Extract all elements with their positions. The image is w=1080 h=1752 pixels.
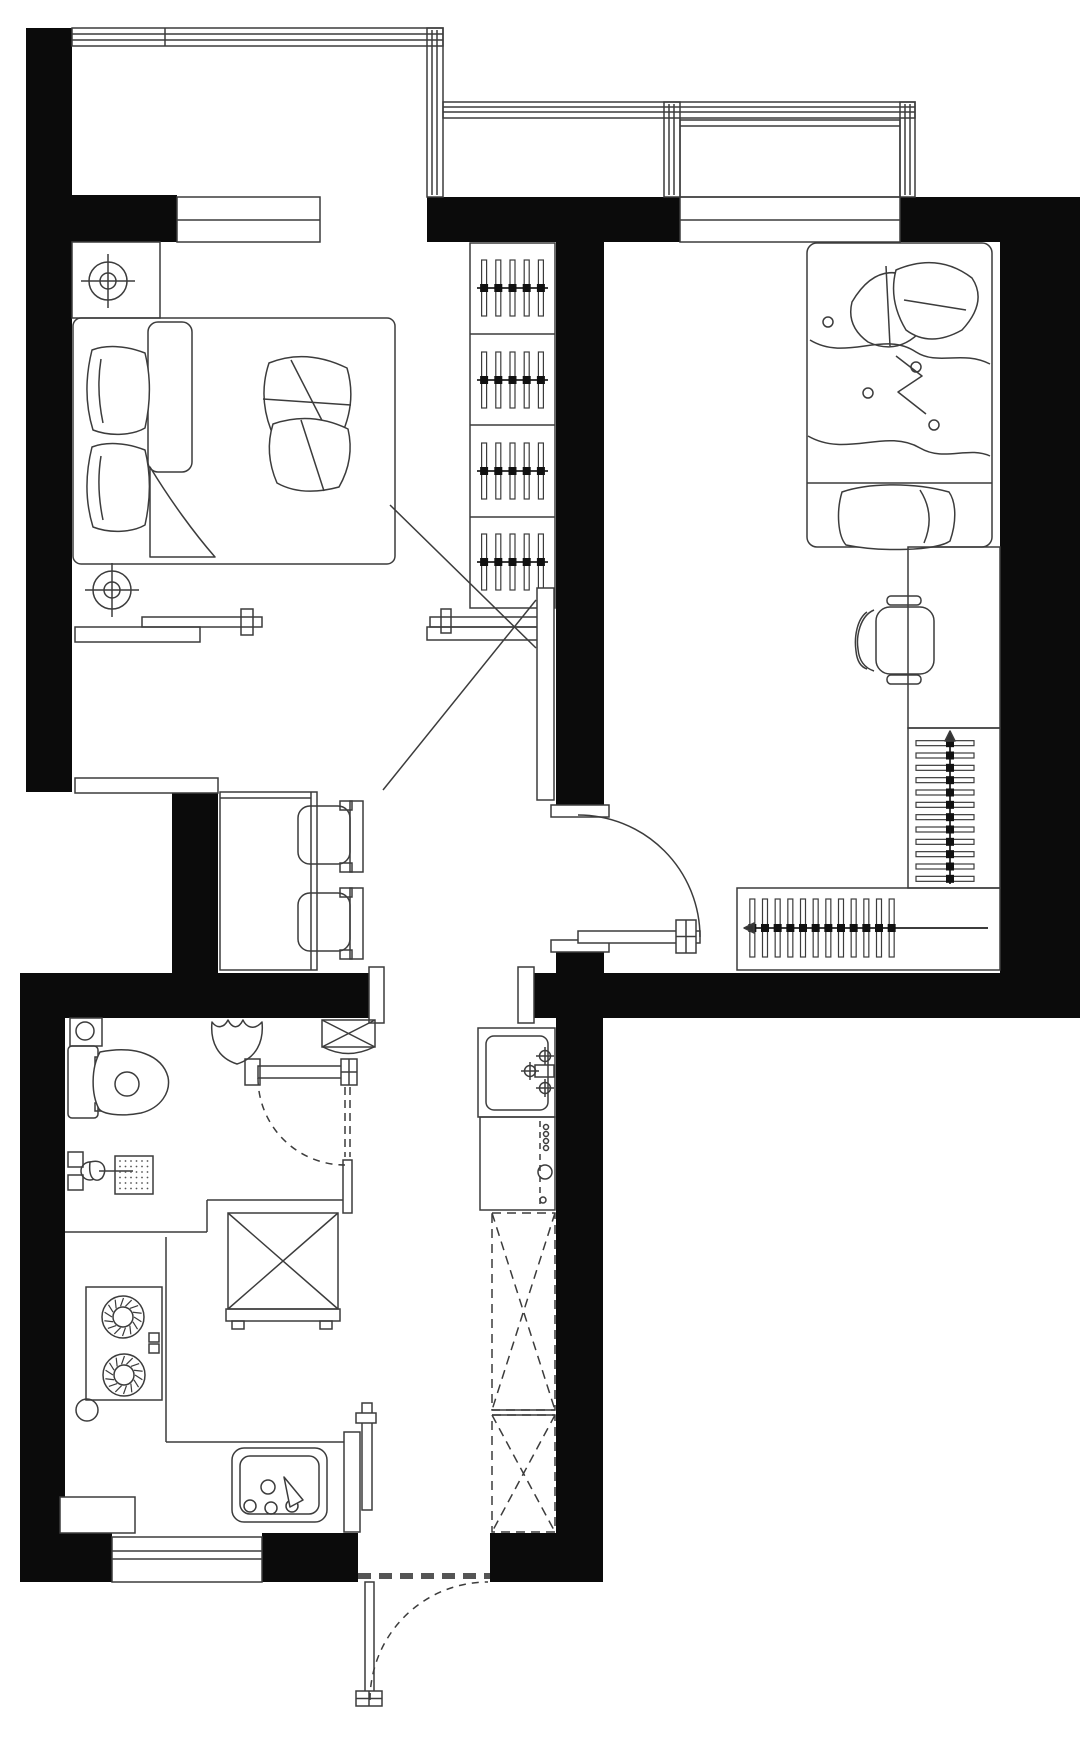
entry-wall-bar — [344, 1432, 360, 1532]
wall-band-right — [533, 973, 1080, 1018]
wall-top-bedroom1-left — [72, 195, 177, 242]
bed1-cushion-2 — [269, 419, 350, 492]
wall-bottom-a — [20, 1533, 112, 1582]
floor-plan-drawing — [0, 0, 1080, 1752]
wall-mid-vertical — [556, 242, 604, 808]
low-wall-dining — [75, 778, 218, 793]
bath-door-leaf — [258, 1066, 346, 1078]
toilet-bowl — [93, 1050, 168, 1115]
wall-top-mid — [427, 197, 680, 242]
bath-door-jamb-lower — [343, 1160, 352, 1213]
wall-bottom-b — [262, 1533, 358, 1582]
entry-tick — [356, 1413, 376, 1423]
bed1-pillow-1 — [87, 347, 150, 435]
wall-band-left — [20, 973, 377, 1018]
door-cap-hall-left — [369, 967, 384, 1023]
bed1-pillow-2 — [87, 444, 150, 532]
bed2-pillow — [839, 485, 955, 550]
bath-door-hinge — [341, 1059, 357, 1085]
wall-bottom-c — [490, 1533, 603, 1582]
wall-right — [1000, 197, 1080, 1018]
entry-door-hinge — [356, 1691, 382, 1706]
floor-plan-canvas — [0, 0, 1080, 1752]
bedroom2-door-hinge — [676, 920, 696, 953]
sill-box-kitchen — [60, 1497, 135, 1533]
entry-door-leaf — [365, 1582, 374, 1700]
door-cap-hall-right — [518, 967, 534, 1023]
wall-left-lower — [20, 973, 65, 1582]
wall-corridor-right — [556, 947, 603, 1582]
sliding-door-panel — [537, 588, 554, 800]
wall-table-partition — [172, 792, 218, 973]
wall-left-upper — [26, 28, 72, 792]
